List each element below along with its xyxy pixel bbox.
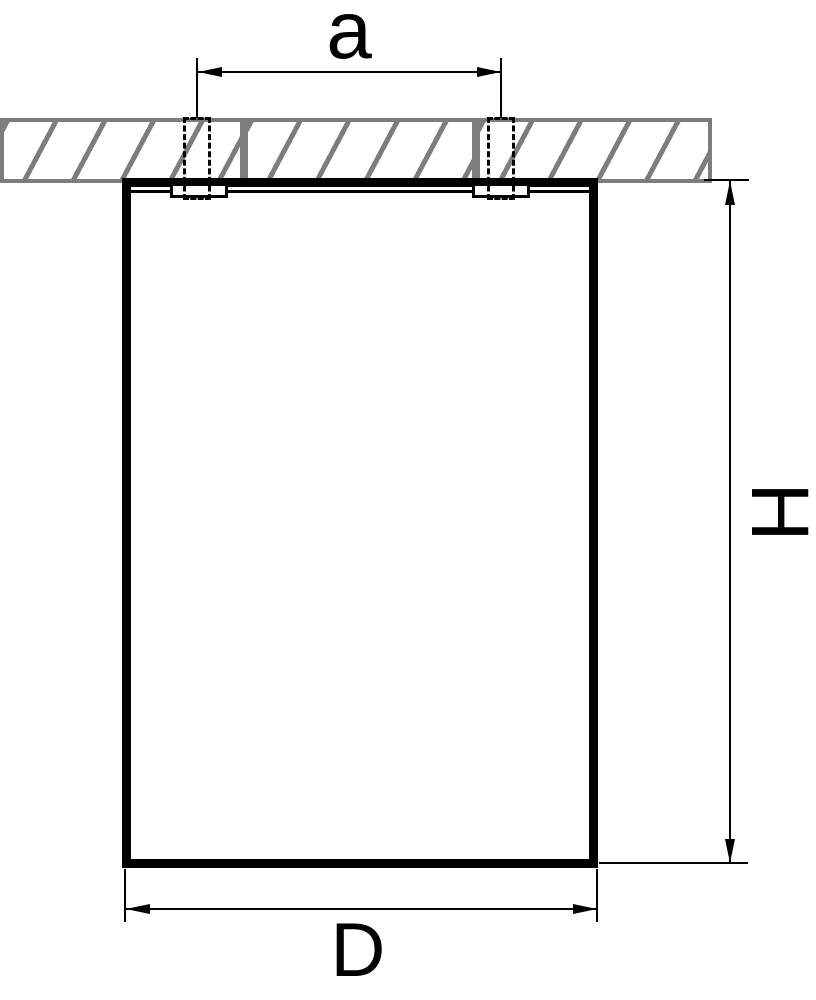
mounting-hole-dashed-right: [487, 117, 515, 200]
dim-h-label: H: [739, 472, 816, 552]
dim-a-label: a: [289, 0, 409, 72]
dim-a-arrowhead-right-icon: [477, 67, 501, 77]
mounting-hole-dashed-left: [183, 117, 211, 200]
dim-d-extension-line-right: [596, 869, 598, 922]
dim-h-arrowhead-bottom-icon: [725, 839, 735, 863]
dim-d-arrowhead-left-icon: [126, 904, 150, 914]
dim-h-arrowhead-top-icon: [725, 181, 735, 205]
ceiling-hatch-segment-middle: [244, 118, 476, 183]
dim-d-arrowhead-right-icon: [573, 904, 597, 914]
dim-d-label: D: [298, 913, 418, 989]
fixture-body-outline: [122, 178, 598, 868]
dim-h-dimension-line: [729, 180, 731, 863]
drawing-canvas: a H D: [0, 0, 816, 1000]
dim-a-arrowhead-left-icon: [198, 67, 222, 77]
dim-d-extension-line-left: [124, 869, 126, 922]
